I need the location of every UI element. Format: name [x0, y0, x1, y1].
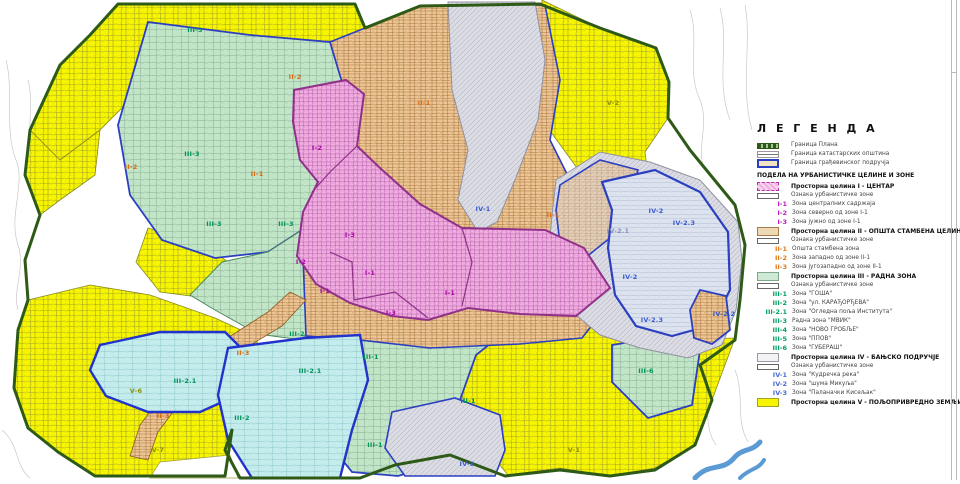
- legend-marker-label: Ознака урбанистичке зоне: [791, 281, 873, 290]
- legend-swatch-cell: [757, 227, 787, 236]
- zone-label: Зона западно од зоне II-1: [792, 254, 870, 263]
- zone-code: II-1: [757, 245, 788, 254]
- legend-swatch-cell: [757, 151, 787, 158]
- legend-zone-row: IV-2Зона "шума Микуља": [757, 380, 953, 389]
- zone-code: III-2.1: [757, 308, 788, 317]
- zone-code: III-1: [757, 290, 788, 299]
- zone-code: I-2: [757, 209, 788, 218]
- legend-zone-row: IV-1Зона "Кудречка река": [757, 371, 953, 380]
- legend-title: Л Е Г Е Н Д А: [757, 122, 953, 135]
- legend-zone-row: III-1Зона "ГОША": [757, 290, 953, 299]
- zone-code: I-1: [757, 200, 788, 209]
- zone-label: Зона "ГОША": [792, 290, 832, 299]
- zone-code: I-3: [757, 218, 788, 227]
- sheet-frame-tick: [951, 72, 957, 73]
- legend-boundary-label: Граница катастарских општина: [791, 150, 889, 159]
- legend-marker-row: Ознака урбанистичке зоне: [757, 362, 953, 371]
- legend-zone-row: III-3Радна зона "МВИК": [757, 317, 953, 326]
- legend-zone-row: I-1Зона централних садржаја: [757, 200, 953, 209]
- zone-label: Општа стамбена зона: [792, 245, 859, 254]
- legend-section-header: Просторна целина I - ЦЕНТАР: [791, 182, 894, 191]
- legend-swatch-cell: [757, 398, 787, 407]
- legend-zone-row: IV-3Зона "Паланачки Кисељак": [757, 389, 953, 398]
- legend-zone-row: II-3Зона југозападно од зоне II-1: [757, 263, 953, 272]
- legend-panel: Л Е Г Е Н Д А Граница ПланаГраница катас…: [757, 122, 953, 407]
- legend-section-header-row: Просторна целина V - ПОЉОПРИВРЕДНО ЗЕМЉИ…: [757, 398, 953, 407]
- zone-code: III-4: [757, 326, 788, 335]
- legend-boundary-row: Граница Плана: [757, 141, 953, 150]
- legend-marker-row: Ознака урбанистичке зоне: [757, 191, 953, 200]
- river: [695, 442, 764, 478]
- legend-boundary-rows: Граница ПланаГраница катастарских општин…: [757, 141, 953, 168]
- zone-label: Радна зона "МВИК": [792, 317, 851, 326]
- legend-zone-row: III-4Зона "НОВО ГРОБЉЕ": [757, 326, 953, 335]
- zone-label: Зона "ул. КАРАЂОРЂЕВА": [792, 299, 869, 308]
- legend-boundary-row: Граница грађевинског подручја: [757, 159, 953, 168]
- zone-code: II-2: [757, 254, 788, 263]
- legend-swatch: [757, 283, 779, 289]
- legend-section-header-row: Просторна целина I - ЦЕНТАР: [757, 182, 953, 191]
- legend-swatch-cell: [757, 364, 787, 370]
- zone-code: III-6: [757, 344, 788, 353]
- zone-code: IV-2: [757, 380, 788, 389]
- zone-label: Зона "Огледна поља Института": [792, 308, 892, 317]
- legend-marker-row: Ознака урбанистичке зоне: [757, 281, 953, 290]
- legend-zone-row: II-2Зона западно од зоне II-1: [757, 254, 953, 263]
- legend-boundary-label: Граница грађевинског подручја: [791, 159, 889, 168]
- legend-swatch: [757, 193, 779, 199]
- zone-label: Зона "Паланачки Кисељак": [792, 389, 876, 398]
- zone-label: Зона југозападно од зоне II-1: [792, 263, 882, 272]
- legend-sections: Просторна целина I - ЦЕНТАРОзнака урбани…: [757, 182, 953, 407]
- zone-code: II-3: [757, 263, 788, 272]
- legend-marker-row: Ознака урбанистичке зоне: [757, 236, 953, 245]
- legend-swatch-cell: [757, 238, 787, 244]
- legend-zone-row: III-2Зона "ул. КАРАЂОРЂЕВА": [757, 299, 953, 308]
- legend-swatch: [757, 143, 779, 149]
- legend-marker-label: Ознака урбанистичке зоне: [791, 236, 873, 245]
- legend-swatch: [757, 151, 779, 158]
- legend-swatch: [757, 364, 779, 370]
- legend-section-header: Просторна целина III - РАДНА ЗОНА: [791, 272, 916, 281]
- legend-section-header-row: Просторна целина IV - БАЊСКО ПОДРУЧЈЕ: [757, 353, 953, 362]
- legend-boundary-label: Граница Плана: [791, 141, 838, 150]
- legend-section-header-row: Просторна целина III - РАДНА ЗОНА: [757, 272, 953, 281]
- legend-section-header: Просторна целина II - ОПШТА СТАМБЕНА ЦЕЛ…: [791, 227, 960, 236]
- legend-swatch-cell: [757, 353, 787, 362]
- zone-code: III-5: [757, 335, 788, 344]
- legend-swatch-cell: [757, 272, 787, 281]
- zone-label: Зона "ППОВ": [792, 335, 831, 344]
- legend-swatch: [757, 272, 779, 281]
- legend-swatch: [757, 159, 779, 168]
- legend-zone-row: I-3Зона јужно од зоне I-1: [757, 218, 953, 227]
- legend-zone-row: I-2Зона северно од зоне I-1: [757, 209, 953, 218]
- legend-swatch: [757, 353, 779, 362]
- legend-boundary-row: Граница катастарских општина: [757, 150, 953, 159]
- zone-label: Зона "ГУБЕРАШ": [792, 344, 842, 353]
- legend-swatch: [757, 227, 779, 236]
- legend-zone-row: III-5Зона "ППОВ": [757, 335, 953, 344]
- legend-swatch: [757, 398, 779, 407]
- legend-section-header: Просторна целина V - ПОЉОПРИВРЕДНО ЗЕМЉИ…: [791, 398, 960, 407]
- legend-division-title: ПОДЕЛА НА УРБАНИСТИЧКЕ ЦЕЛИНЕ И ЗОНЕ: [757, 172, 953, 180]
- zone-code: III-3: [757, 317, 788, 326]
- legend-zone-row: III-6Зона "ГУБЕРАШ": [757, 344, 953, 353]
- legend-zone-row: III-2.1Зона "Огледна поља Института": [757, 308, 953, 317]
- zone-code: III-2: [757, 299, 788, 308]
- zone-label: Зона "НОВО ГРОБЉЕ": [792, 326, 859, 335]
- legend-section-header: Просторна целина IV - БАЊСКО ПОДРУЧЈЕ: [791, 353, 939, 362]
- urban-plan-sheet: { "colors": { "magenta": "#b000b0", "ora…: [0, 0, 960, 480]
- legend-swatch-cell: [757, 143, 787, 149]
- zone-label: Зона централних садржаја: [792, 200, 875, 209]
- zone-code: IV-1: [757, 371, 788, 380]
- legend-swatch-cell: [757, 159, 787, 168]
- legend-swatch: [757, 238, 779, 244]
- legend-section-header-row: Просторна целина II - ОПШТА СТАМБЕНА ЦЕЛ…: [757, 227, 953, 236]
- legend-marker-label: Ознака урбанистичке зоне: [791, 191, 873, 200]
- legend-swatch-cell: [757, 182, 787, 191]
- zone-label: Зона "шума Микуља": [792, 380, 857, 389]
- zone-label: Зона северно од зоне I-1: [792, 209, 868, 218]
- zone-label: Зона јужно од зоне I-1: [792, 218, 861, 227]
- zone-label: Зона "Кудречка река": [792, 371, 859, 380]
- legend-zone-row: II-1Општа стамбена зона: [757, 245, 953, 254]
- zone-code: IV-3: [757, 389, 788, 398]
- legend-marker-label: Ознака урбанистичке зоне: [791, 362, 873, 371]
- legend-swatch: [757, 182, 779, 191]
- legend-swatch-cell: [757, 283, 787, 289]
- legend-swatch-cell: [757, 193, 787, 199]
